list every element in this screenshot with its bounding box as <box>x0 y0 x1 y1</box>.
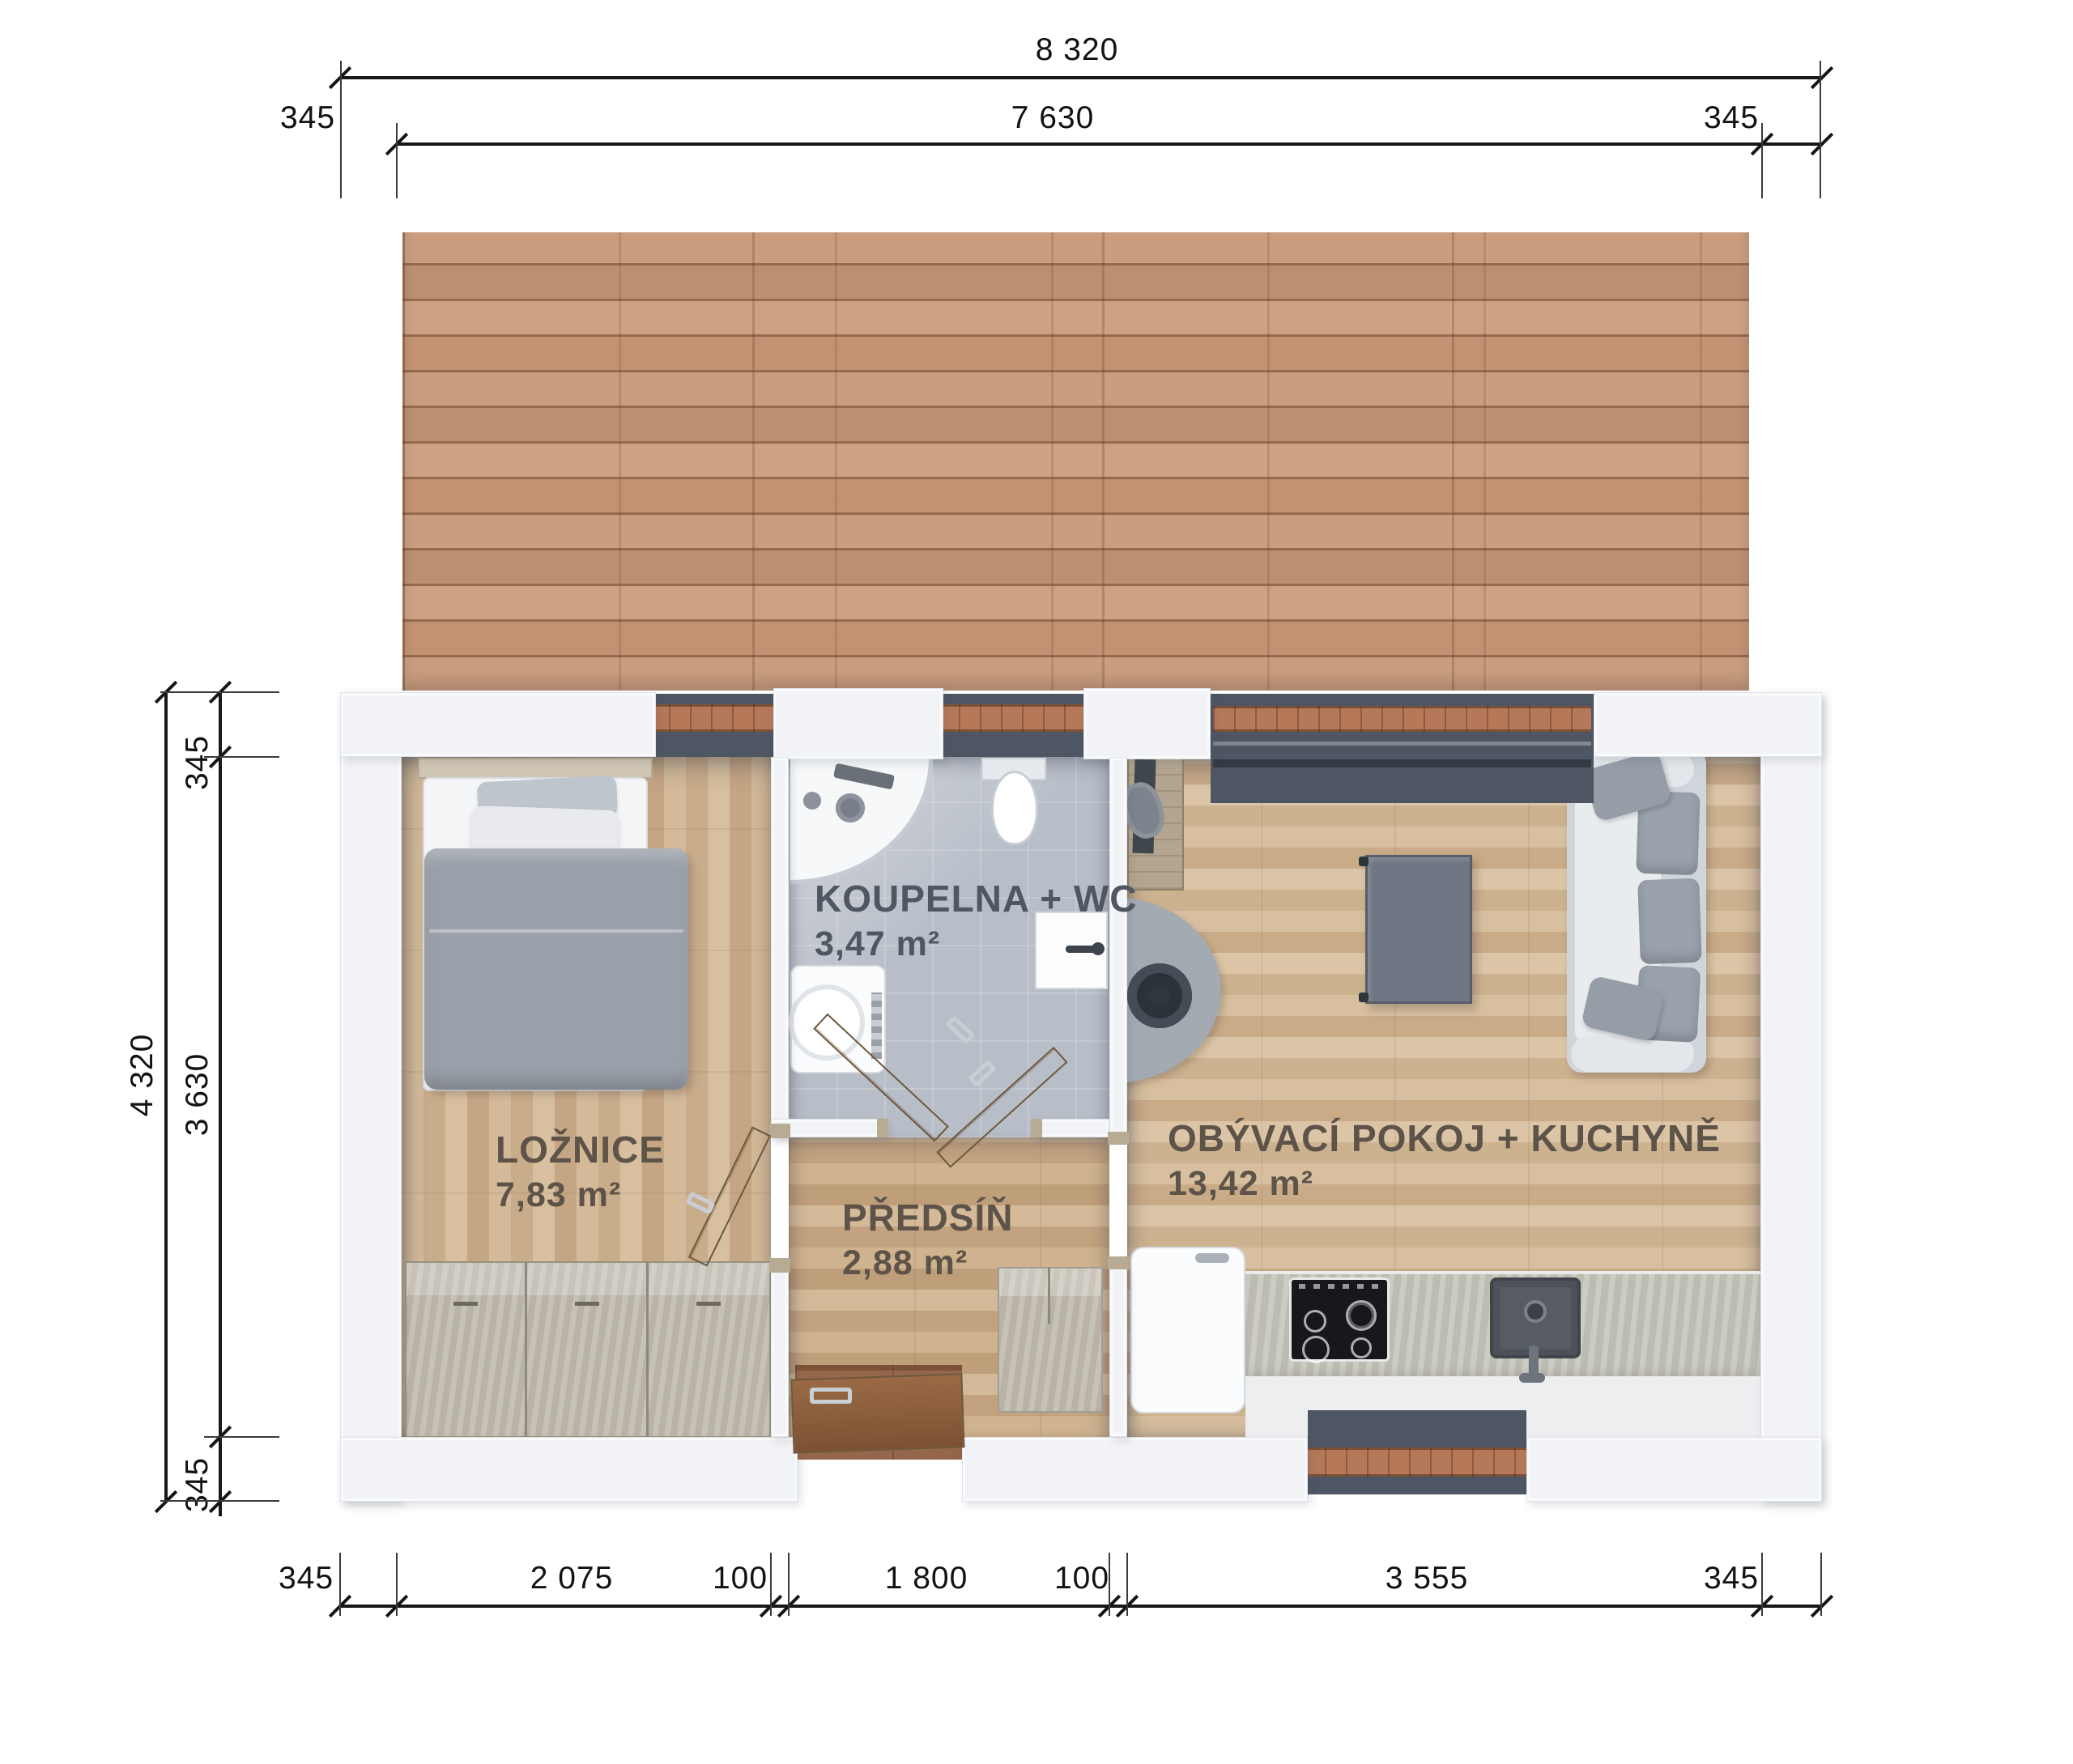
witness-line <box>339 1553 341 1616</box>
floor-plan-canvas: LOŽNICE 7,83 m² KOUPELNA + WC 3,47 m² PŘ… <box>0 0 2073 1764</box>
dimension-lines-layer <box>0 0 2073 1764</box>
witness-line <box>204 756 279 758</box>
dimension-line <box>397 142 1822 146</box>
witness-line <box>1761 123 1763 198</box>
witness-line <box>340 61 342 198</box>
witness-line <box>396 1553 398 1616</box>
witness-line <box>1820 1553 1822 1616</box>
witness-line <box>1761 1553 1763 1616</box>
witness-line <box>204 1436 279 1438</box>
witness-line <box>396 123 398 198</box>
witness-line <box>770 1553 772 1616</box>
witness-line <box>160 691 279 693</box>
dimension-line <box>340 76 1822 79</box>
witness-line <box>1109 1553 1110 1616</box>
witness-line <box>160 1500 279 1502</box>
dimension-line <box>164 692 168 1502</box>
witness-line <box>788 1553 790 1616</box>
witness-line <box>1126 1553 1128 1616</box>
dimension-line <box>340 1605 1822 1608</box>
dimension-line <box>219 692 222 1516</box>
witness-line <box>1820 61 1821 198</box>
